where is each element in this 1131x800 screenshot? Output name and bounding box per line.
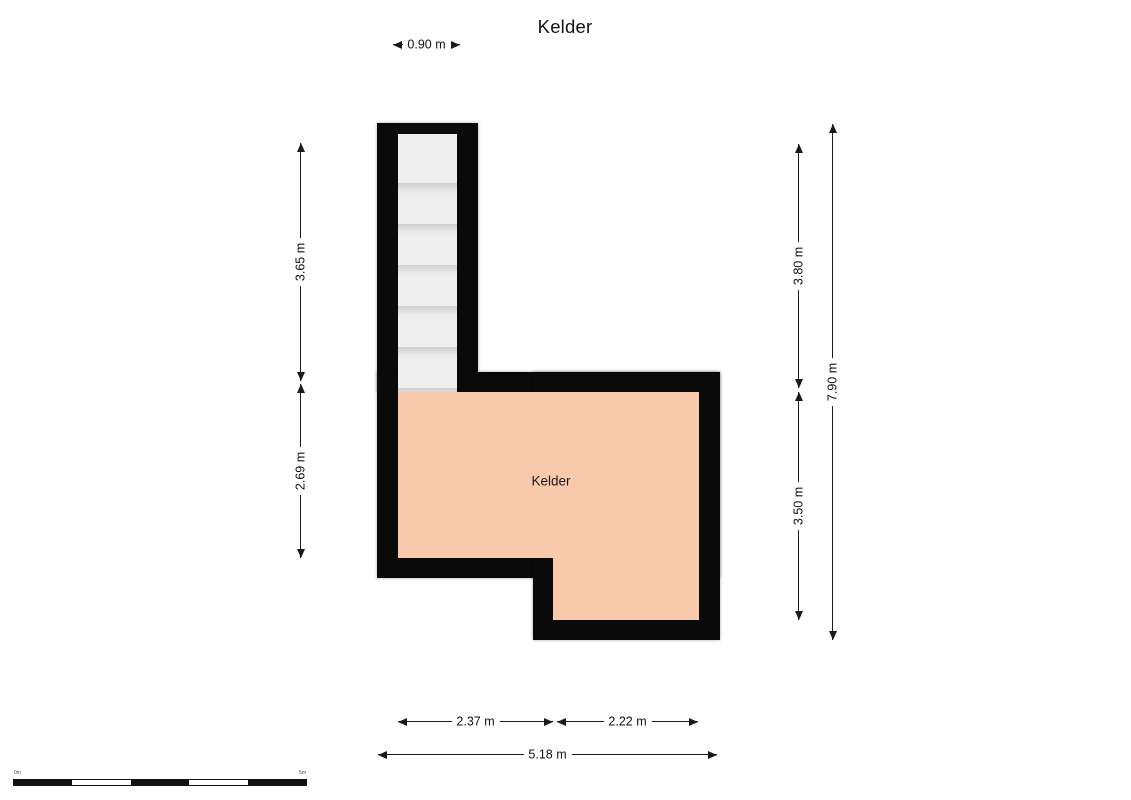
stair-tread: [398, 183, 457, 224]
dimension-right-lower: 3.50 m: [798, 392, 799, 620]
dimension-top-width: 0.90 m: [393, 44, 460, 45]
stair-tread: [398, 265, 457, 306]
scale-bar-segment: [14, 780, 72, 785]
dimension-left-upper: 3.65 m: [300, 143, 301, 381]
dimension-bottom-right-label: 2.22 m: [603, 715, 651, 730]
dimension-right-total: 7.90 m: [832, 124, 833, 640]
dimension-right-total-label: 7.90 m: [826, 358, 841, 406]
scale-bar-end-label: 5m: [299, 771, 306, 776]
dimension-left-upper-label: 3.65 m: [294, 238, 309, 286]
staircase: [398, 134, 457, 392]
dimension-right-upper-label: 3.80 m: [792, 242, 807, 290]
scale-bar-segment: [189, 780, 247, 785]
dimension-right-lower-label: 3.50 m: [792, 482, 807, 530]
stair-tread: [398, 388, 457, 392]
scale-bar-segment: [72, 780, 130, 785]
floorplan-canvas: Kelder Kelder 0.90 m 3.65 m 2.69 m 3.80 …: [0, 0, 1131, 800]
dimension-left-lower: 2.69 m: [300, 384, 301, 558]
scale-bar-segment: [131, 780, 189, 785]
scale-bar: 0m 5m: [13, 779, 307, 786]
stair-tread: [398, 306, 457, 347]
dimension-bottom-left: 2.37 m: [398, 721, 553, 722]
dimension-bottom-total: 5.18 m: [378, 754, 717, 755]
dimension-bottom-total-label: 5.18 m: [523, 748, 571, 763]
dimension-left-lower-label: 2.69 m: [294, 447, 309, 495]
dimension-bottom-left-label: 2.37 m: [451, 715, 499, 730]
dimension-bottom-right: 2.22 m: [557, 721, 698, 722]
room-label: Kelder: [531, 474, 570, 489]
scale-bar-start-label: 0m: [14, 771, 21, 776]
scale-bar-segment: [248, 780, 306, 785]
dimension-right-upper: 3.80 m: [798, 144, 799, 388]
stair-tread: [398, 224, 457, 265]
dimension-top-width-label: 0.90 m: [402, 38, 450, 53]
page-title: Kelder: [538, 16, 593, 38]
stair-tread: [398, 347, 457, 388]
